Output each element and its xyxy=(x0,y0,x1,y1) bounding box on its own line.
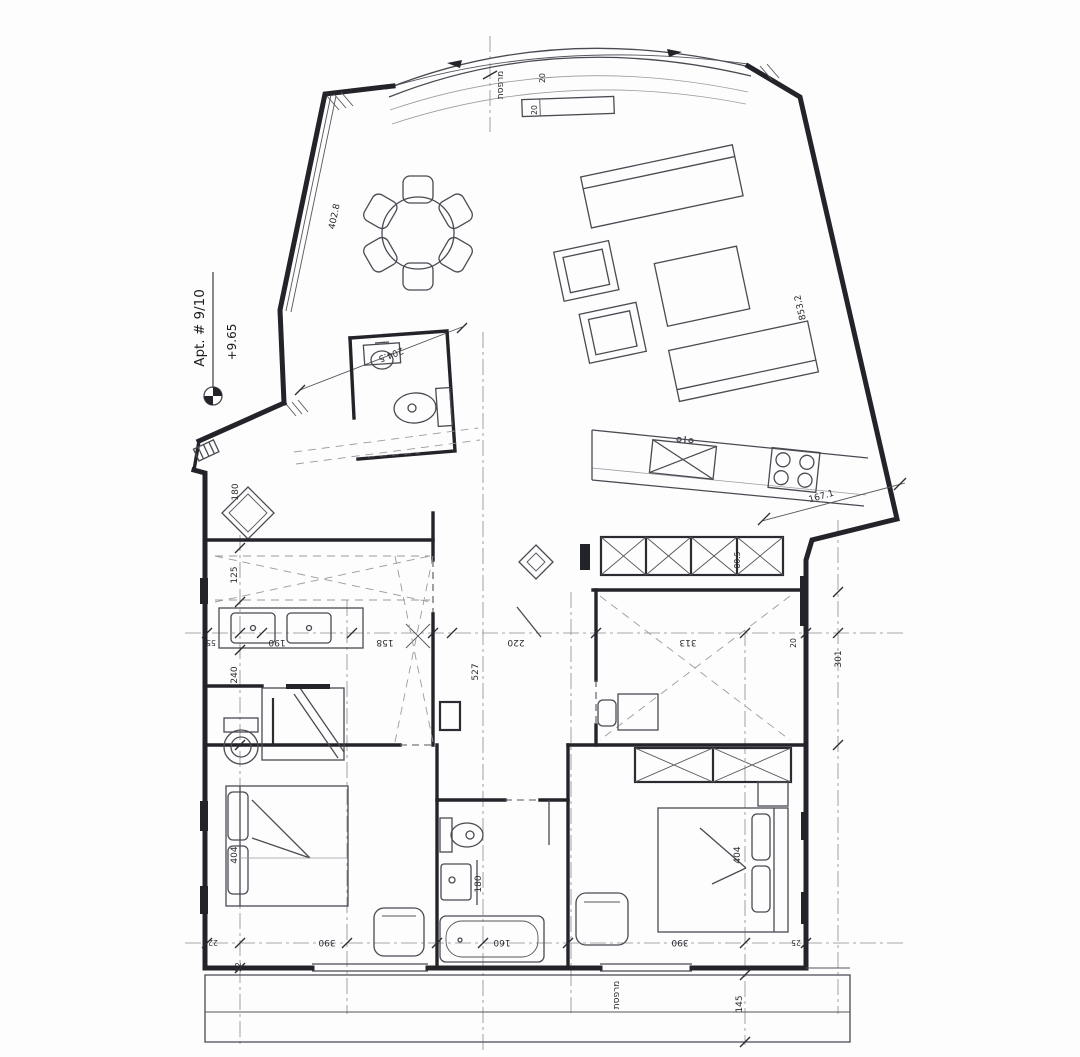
dim-balcony-top-width: 20 xyxy=(538,73,547,83)
dim-190: 190 xyxy=(268,637,285,647)
dim-living-wall: 853.2 xyxy=(793,294,809,321)
bath-sink xyxy=(441,860,477,905)
top-balcony-railing xyxy=(386,48,754,124)
window-left-1 xyxy=(200,578,208,604)
desk-chair xyxy=(598,700,616,726)
vanity xyxy=(219,608,363,648)
shelf-diamond xyxy=(519,545,553,579)
bathtub xyxy=(440,916,544,962)
master-toilet xyxy=(224,718,258,764)
coffee-table xyxy=(654,246,749,326)
elevation-label: +9.65 xyxy=(225,324,239,361)
interior-walls xyxy=(205,513,806,968)
dim-240: 240 xyxy=(230,666,240,683)
dim-arrow-right xyxy=(667,49,682,57)
dim-180-bath: 180 xyxy=(474,875,484,892)
dim-390-right: 390 xyxy=(671,937,688,947)
bedroom-right xyxy=(576,748,791,945)
bed-right xyxy=(658,808,788,932)
floor-plan-svg: Apt. # 9/10 +9.65 מרפסת 20 20 204.5 402.… xyxy=(0,0,1080,1057)
window-right-3 xyxy=(801,892,808,924)
dining-set xyxy=(361,176,475,290)
chair-left xyxy=(374,908,424,956)
window-right-2 xyxy=(801,812,808,840)
dressing-area xyxy=(215,556,430,602)
dim-390-left: 390 xyxy=(318,937,335,947)
dim-158: 158 xyxy=(376,637,393,647)
title-block: Apt. # 9/10 +9.65 xyxy=(192,272,239,405)
living-sofa-set xyxy=(540,137,819,420)
dim-55: 55 xyxy=(206,638,216,647)
dim-180-entry: 180 xyxy=(231,483,241,500)
corridor-closet-x xyxy=(395,556,433,742)
dim-145: 145 xyxy=(735,995,745,1012)
bathroom-center xyxy=(440,818,544,962)
dim-125: 125 xyxy=(230,566,240,583)
chair-right xyxy=(576,893,628,945)
middle-room xyxy=(598,596,790,740)
entry-door xyxy=(222,487,274,539)
dim-post-width: 20 xyxy=(530,105,539,115)
level-marker xyxy=(204,387,222,405)
hall-wardrobe xyxy=(519,537,783,579)
dim-22-b: 22 xyxy=(234,962,243,972)
dim-160-tub: 160 xyxy=(493,937,510,947)
dimension-ticks xyxy=(202,543,843,1047)
dim-220: 220 xyxy=(507,637,524,647)
bottom-balcony xyxy=(205,968,850,1042)
floor-plan-sheet: Apt. # 9/10 +9.65 מרפסת 20 20 204.5 402.… xyxy=(0,0,1080,1057)
dim-balcony-top: מרפסת xyxy=(496,71,506,100)
bath-toilet xyxy=(440,818,483,852)
dim-301: 301 xyxy=(834,650,844,667)
window-left-3 xyxy=(200,886,208,914)
outer-walls xyxy=(194,66,897,971)
dim-closet-depth: 80.5 xyxy=(733,551,742,568)
dim-22-a: 22 xyxy=(208,938,218,947)
guest-wc-toilet xyxy=(393,388,452,427)
centerlines xyxy=(185,36,905,1050)
nightstand xyxy=(758,782,788,806)
desk xyxy=(618,694,658,730)
window-right-1 xyxy=(800,576,808,626)
window-left-2 xyxy=(200,801,208,831)
shower xyxy=(262,684,344,760)
dim-404-left: 404 xyxy=(230,846,240,863)
apartment-label: Apt. # 9/10 xyxy=(192,289,208,367)
dim-404-right: 404 xyxy=(733,846,743,863)
dim-terrace-wall: 402.8 xyxy=(327,203,342,231)
bedroom-left xyxy=(226,786,424,956)
dim-25: 25 xyxy=(791,938,801,947)
stove xyxy=(768,448,820,493)
dim-313: 313 xyxy=(679,637,696,647)
corridor-niche xyxy=(440,702,460,730)
dim-20-wall: 20 xyxy=(789,638,798,648)
dim-balcony-bottom: מרפסת xyxy=(612,981,622,1010)
dim-527: 527 xyxy=(471,663,481,680)
